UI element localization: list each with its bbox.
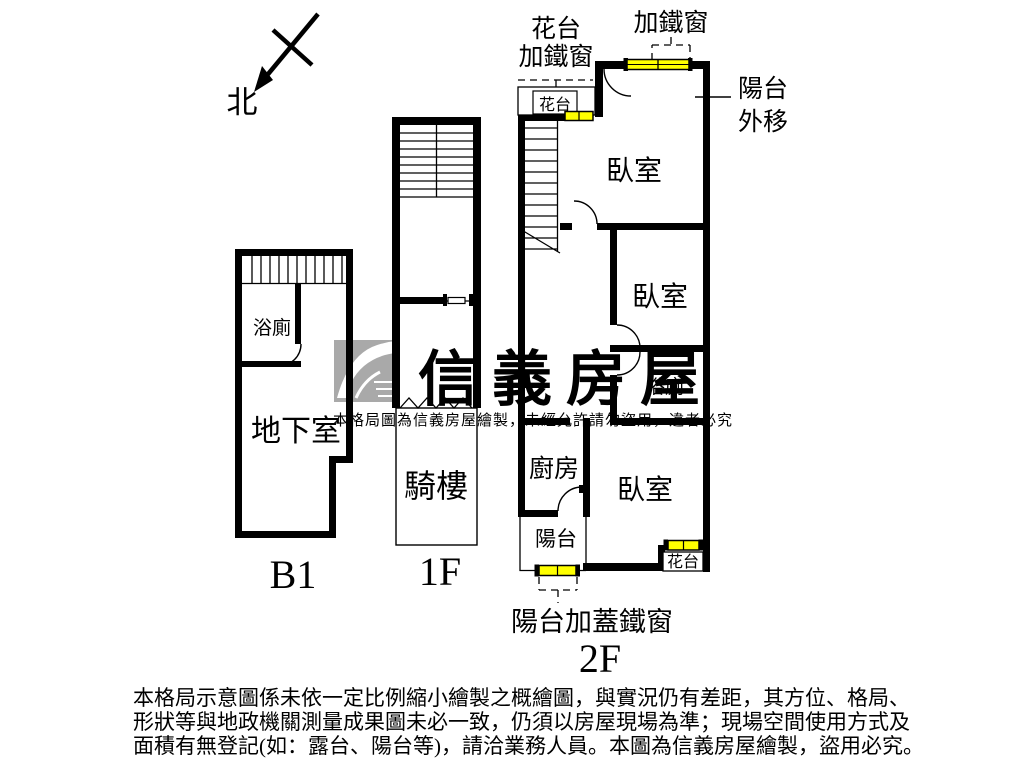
label-f1-arcade: 騎樓 <box>404 468 468 504</box>
plan-b1: 浴廁 地下室 B1 <box>235 249 353 597</box>
callout-line-iron-window <box>652 35 690 60</box>
label-f2-balcony: 陽台 <box>535 527 577 551</box>
label-b1-basement: 地下室 <box>251 415 341 448</box>
iron-window-marker-balcony <box>535 565 581 577</box>
sinyi-logo-icon <box>334 340 396 402</box>
callout-line-flower-iron <box>518 80 593 87</box>
door-arc-f2-hall-bedroom-top <box>574 201 597 224</box>
label-floor-b1: B1 <box>270 552 317 597</box>
door-arc-f2-bedroom-top-entry <box>604 69 631 96</box>
label-f2-kitchen: 廚房 <box>529 455 579 483</box>
label-floor-2f: 2F <box>579 636 621 681</box>
label-f2-bathroom: 浴廁 <box>646 375 684 398</box>
door-arc-f2-bedroom-mid <box>617 325 640 348</box>
north-arrow: 北 <box>227 14 319 120</box>
f1-sliding-door <box>445 298 473 304</box>
iron-window-marker-top <box>624 58 693 71</box>
callout-balcony-out-line2: 外移 <box>738 108 788 136</box>
label-f2-bedroom-mid: 臥室 <box>632 281 688 313</box>
label-f2-bedroom-top: 臥室 <box>606 155 662 187</box>
label-f2-flowerbox-top: 花台 <box>539 96 571 114</box>
callout-iron-window: 加鐵窗 <box>633 9 708 37</box>
callout-flower-iron-line2: 加鐵窗 <box>518 43 593 71</box>
callout-flower-iron-line1: 花台 <box>531 15 581 43</box>
callout-balcony-cover-iron: 陽台加蓋鐵窗 <box>511 607 673 637</box>
north-label: 北 <box>227 85 258 120</box>
label-f2-flowerbox-bottom: 花台 <box>667 553 699 571</box>
f2-walls <box>518 61 710 572</box>
f1-stairs <box>400 125 473 197</box>
disclaimer-line1: 本格局示意圖係未依一定比例縮小繪製之概繪圖，與實況仍有差距，其方位、格局、 <box>133 686 910 710</box>
b1-stairs <box>242 256 346 284</box>
callout-balcony-out-line1: 陽台 <box>738 75 788 103</box>
disclaimer-line3: 面積有無登記(如：露台、陽台等)，請洽業務人員。本圖為信義房屋繪製，盜用必究。 <box>133 734 924 758</box>
f2-stairs <box>520 117 560 253</box>
disclaimer-line2: 形狀等與地政機關測量成果圖未必一致，仍須以房屋現場為準；現場空間使用方式及 <box>133 710 910 734</box>
disclaimer: 本格局示意圖係未依一定比例縮小繪製之概繪圖，與實況仍有差距，其方位、格局、 形狀… <box>133 686 924 758</box>
label-floor-1f: 1F <box>419 549 461 594</box>
callout-line-balcony-cover <box>539 577 577 603</box>
iron-window-marker-bedroom-bottom <box>664 540 704 551</box>
floorplan-canvas: 信義房屋 本格局圖為信義房屋繪製，未經允許請勿盜用，違者必究 北 浴廁 地下室 … <box>0 0 1024 768</box>
label-b1-bathroom: 浴廁 <box>253 316 291 339</box>
label-f2-bedroom-bottom: 臥室 <box>617 474 673 506</box>
door-arc-f2-kitchen-balcony <box>558 487 582 511</box>
plan-2f: 臥室 臥室 臥室 浴廁 廚房 陽台 花台 花台 花台 加鐵窗 加鐵窗 陽台 外移… <box>511 9 788 681</box>
